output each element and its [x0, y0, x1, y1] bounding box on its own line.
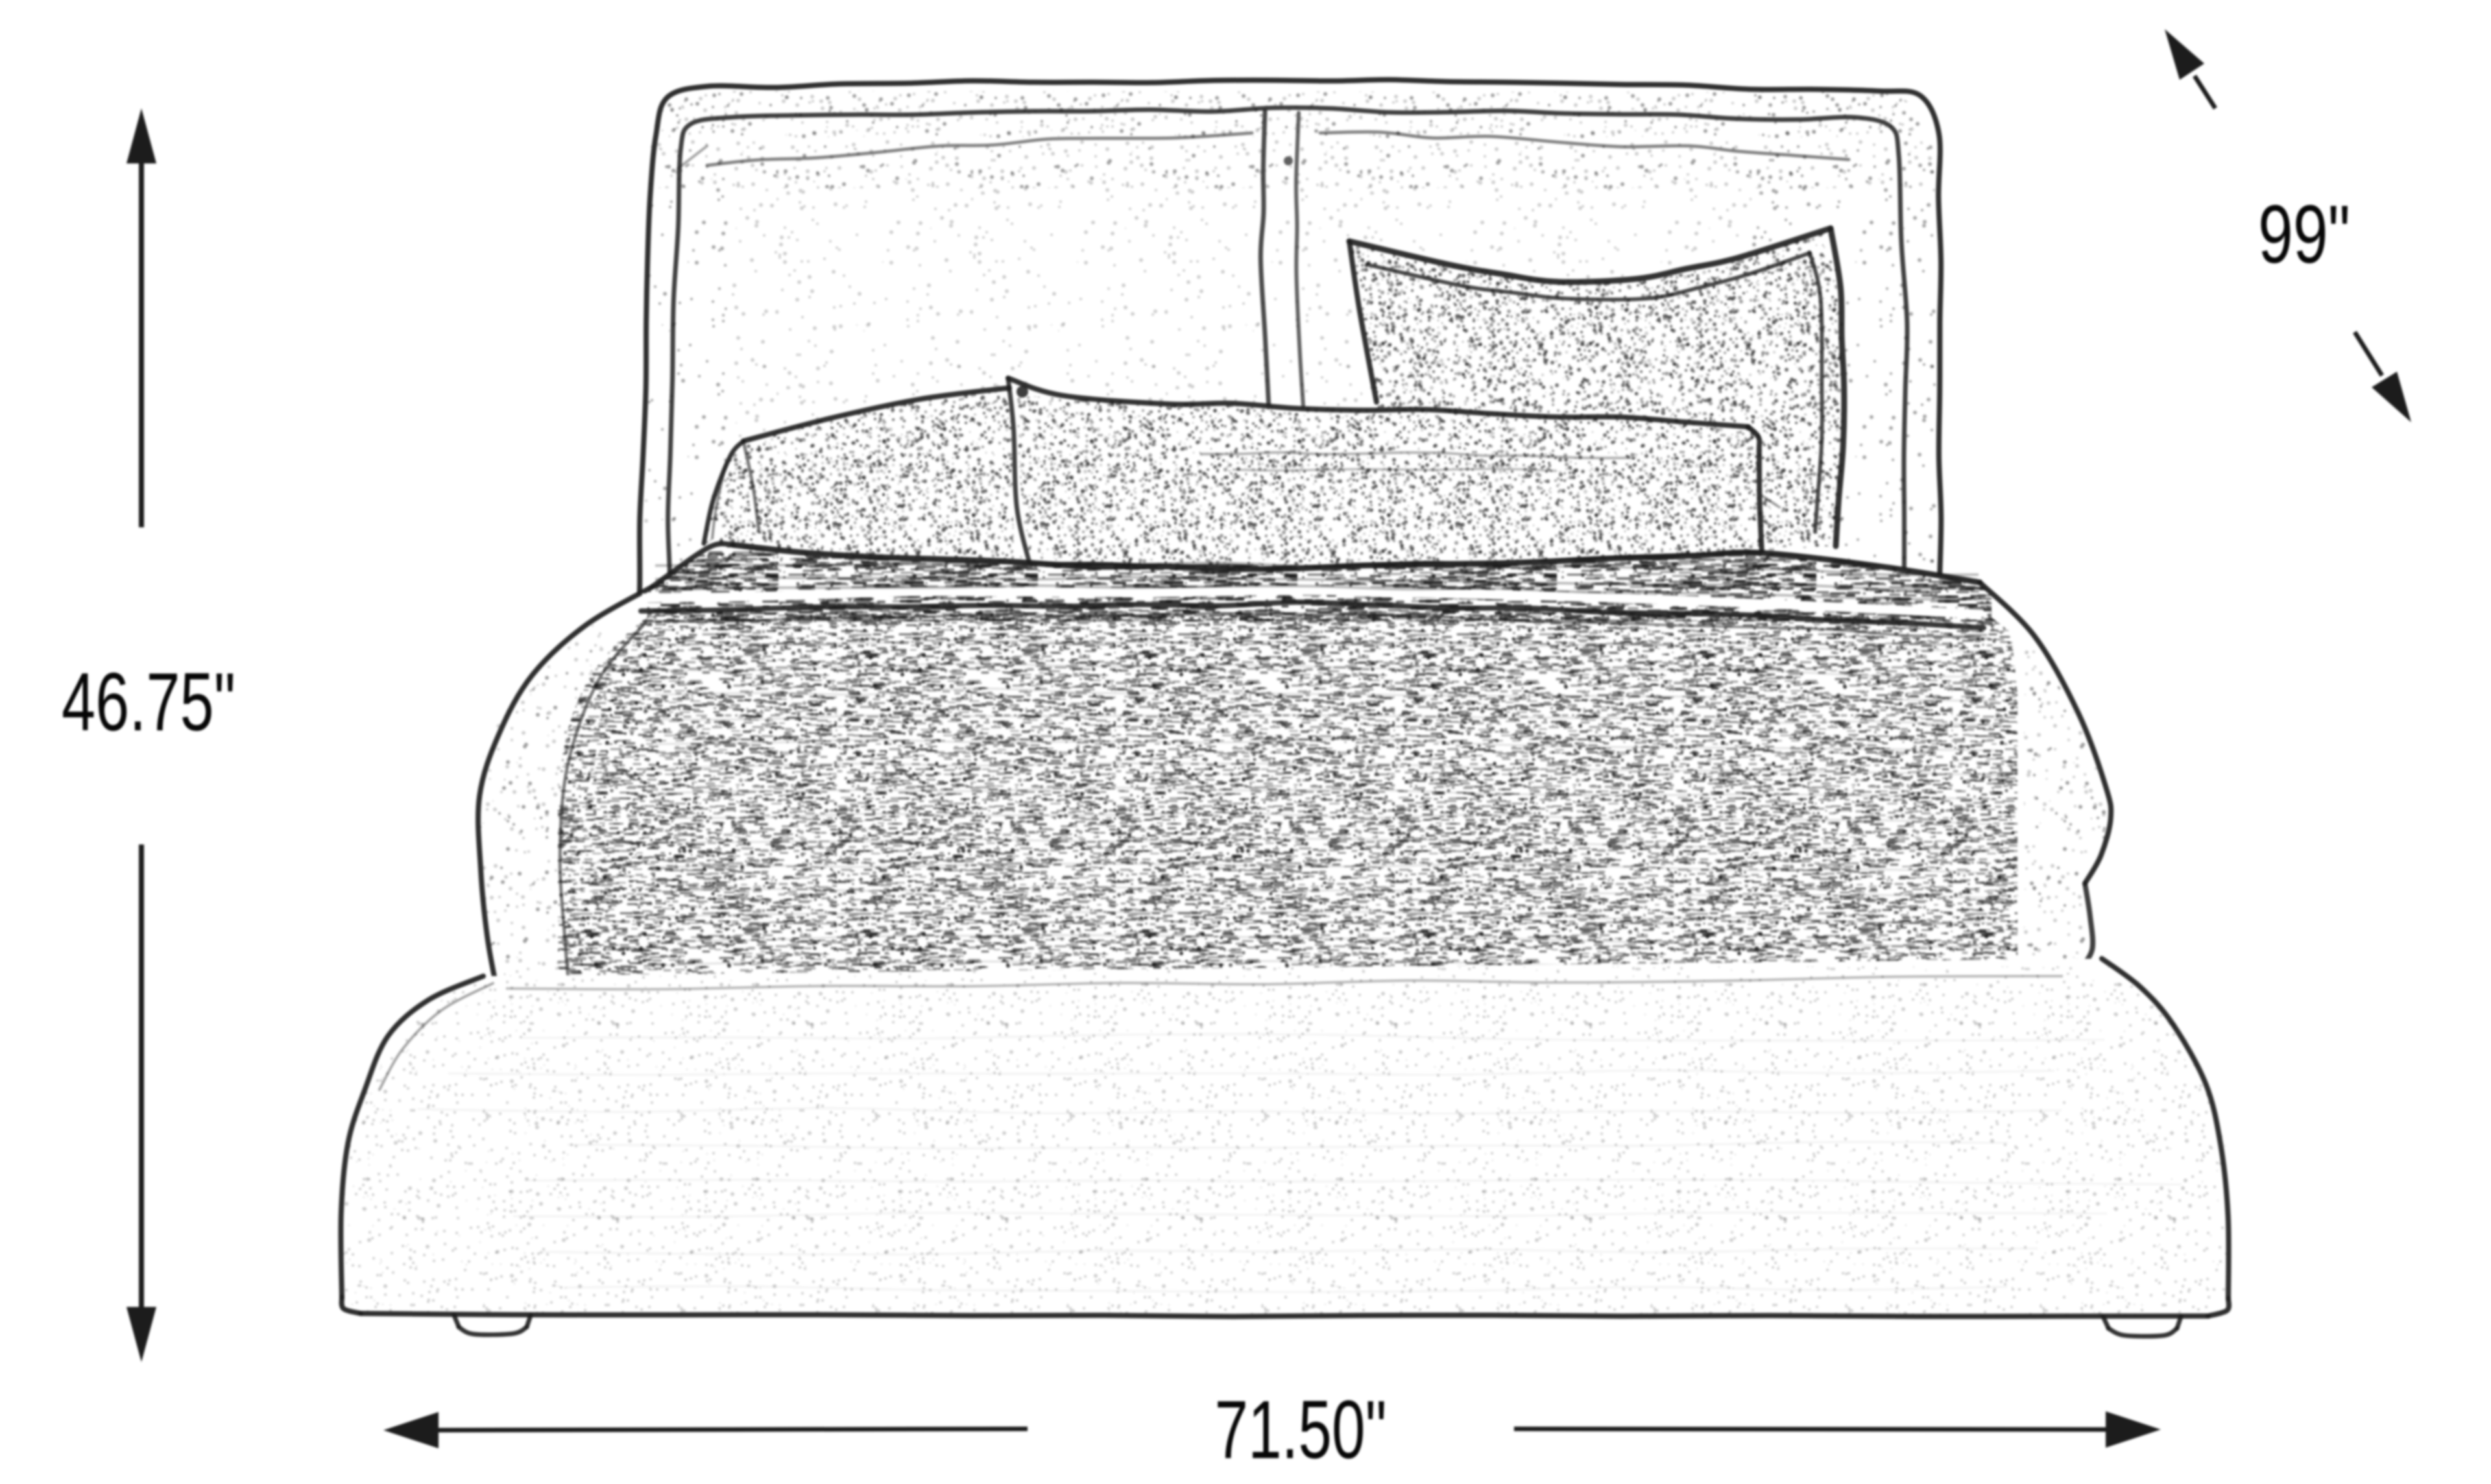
svg-text:71.50": 71.50" — [1215, 1383, 1387, 1476]
svg-text:99": 99" — [2258, 188, 2350, 280]
svg-text:46.75": 46.75" — [62, 656, 235, 748]
